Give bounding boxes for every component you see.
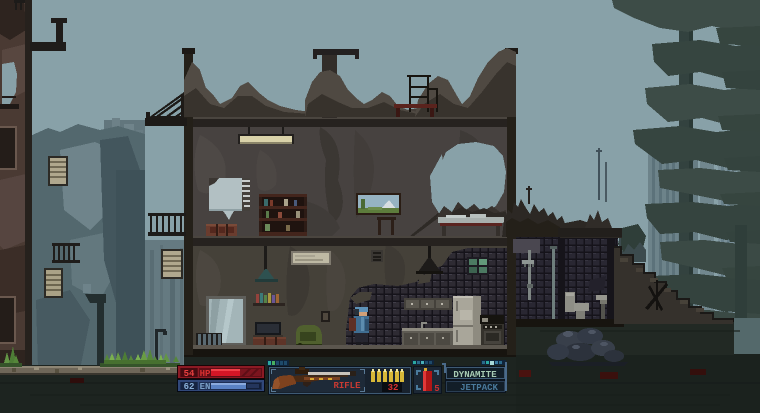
svg-text:5: 5 (434, 384, 439, 394)
svg-text:HP: HP (200, 369, 211, 379)
svg-text:RIFLE: RIFLE (333, 381, 361, 391)
svg-text:54: 54 (184, 369, 195, 379)
svg-text:EN: EN (200, 382, 211, 392)
svg-text:DYNAMITE: DYNAMITE (453, 370, 497, 380)
svg-text:32: 32 (388, 383, 399, 393)
svg-text:JETPACK: JETPACK (460, 383, 498, 393)
svg-text:62: 62 (184, 382, 195, 392)
